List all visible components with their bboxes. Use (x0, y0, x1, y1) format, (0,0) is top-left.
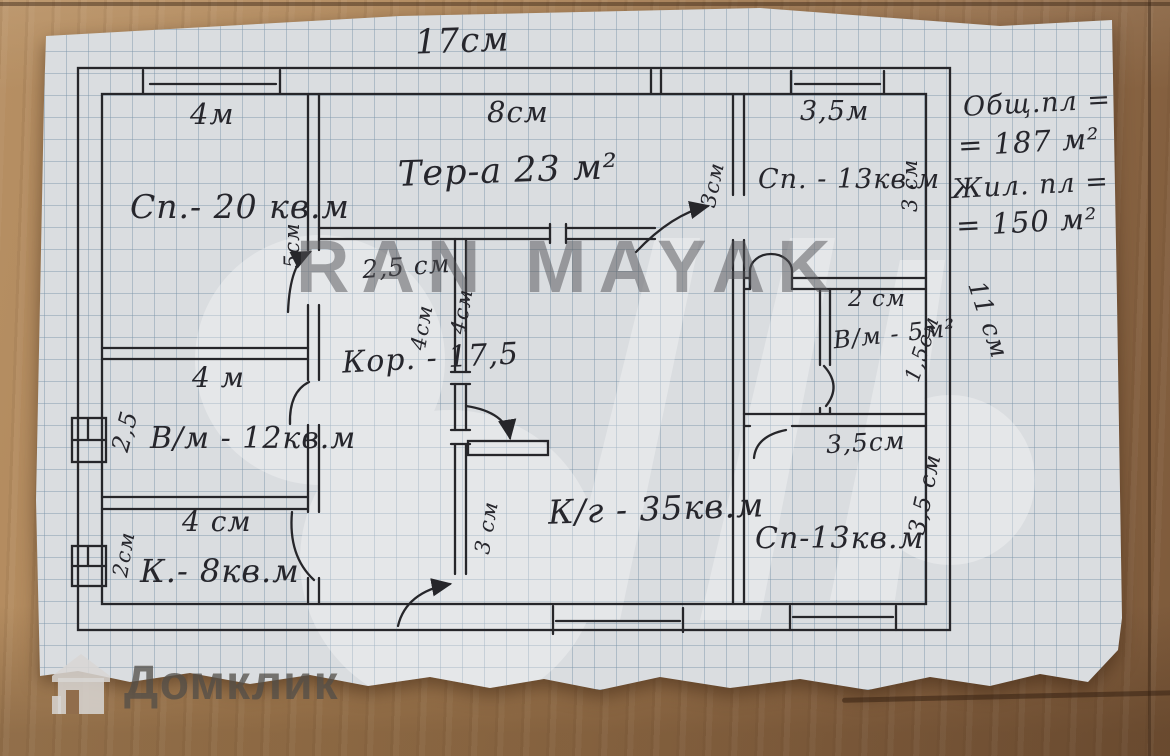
domclick-watermark: Домклик (52, 652, 339, 714)
dim-2cm-vm5: 2 см (848, 288, 906, 311)
living-area-value: = 150 м² (955, 204, 1098, 240)
house-icon-notch (66, 690, 79, 714)
room-label-sp13-bottom: Сп-13кв.м (755, 524, 924, 554)
room-label-sp20: Сп.- 20 кв.м (130, 190, 350, 223)
kitchen-counter (468, 441, 548, 455)
total-area-label: Общ.пл = (962, 86, 1111, 121)
graph-paper: 17см 4м Сп.- 20 кв.м 5см 8см Тер-а 23 м²… (0, 0, 1170, 756)
total-area-value: = 187 м² (957, 124, 1100, 160)
paper-sheet: 17см 4м Сп.- 20 кв.м 5см 8см Тер-а 23 м²… (0, 0, 1170, 756)
dim-35m-top: 3,5м (800, 98, 869, 125)
dim-4cm-bottom: 4 см (182, 508, 252, 536)
room-label-vm12: В/м - 12кв.м (150, 424, 356, 454)
agency-watermark: RAN MAYAK (296, 224, 843, 309)
dim-8cm: 8см (487, 98, 549, 127)
photo-of-floor-plan: 17см 4м Сп.- 20 кв.м 5см 8см Тер-а 23 м²… (0, 0, 1170, 756)
domclick-house-icon (52, 652, 110, 714)
dim-4m-top: 4м (190, 100, 235, 129)
room-label-terrace: Тер-а 23 м² (397, 150, 618, 193)
dim-total-width: 17см (414, 22, 510, 59)
dim-35cm-mid: 3,5см (825, 428, 906, 457)
room-label-kg35: К/г - 35кв.м (547, 488, 764, 529)
domclick-watermark-text: Домклик (124, 656, 339, 711)
living-area-label: Жил. пл = (951, 168, 1109, 203)
room-label-k8: К.- 8кв.м (140, 555, 300, 587)
dim-4m-mid: 4 м (192, 364, 245, 392)
dim-3cm-right-vert: 3 см (900, 159, 921, 212)
room-label-corridor: Кор. - 17,5 (341, 339, 519, 378)
